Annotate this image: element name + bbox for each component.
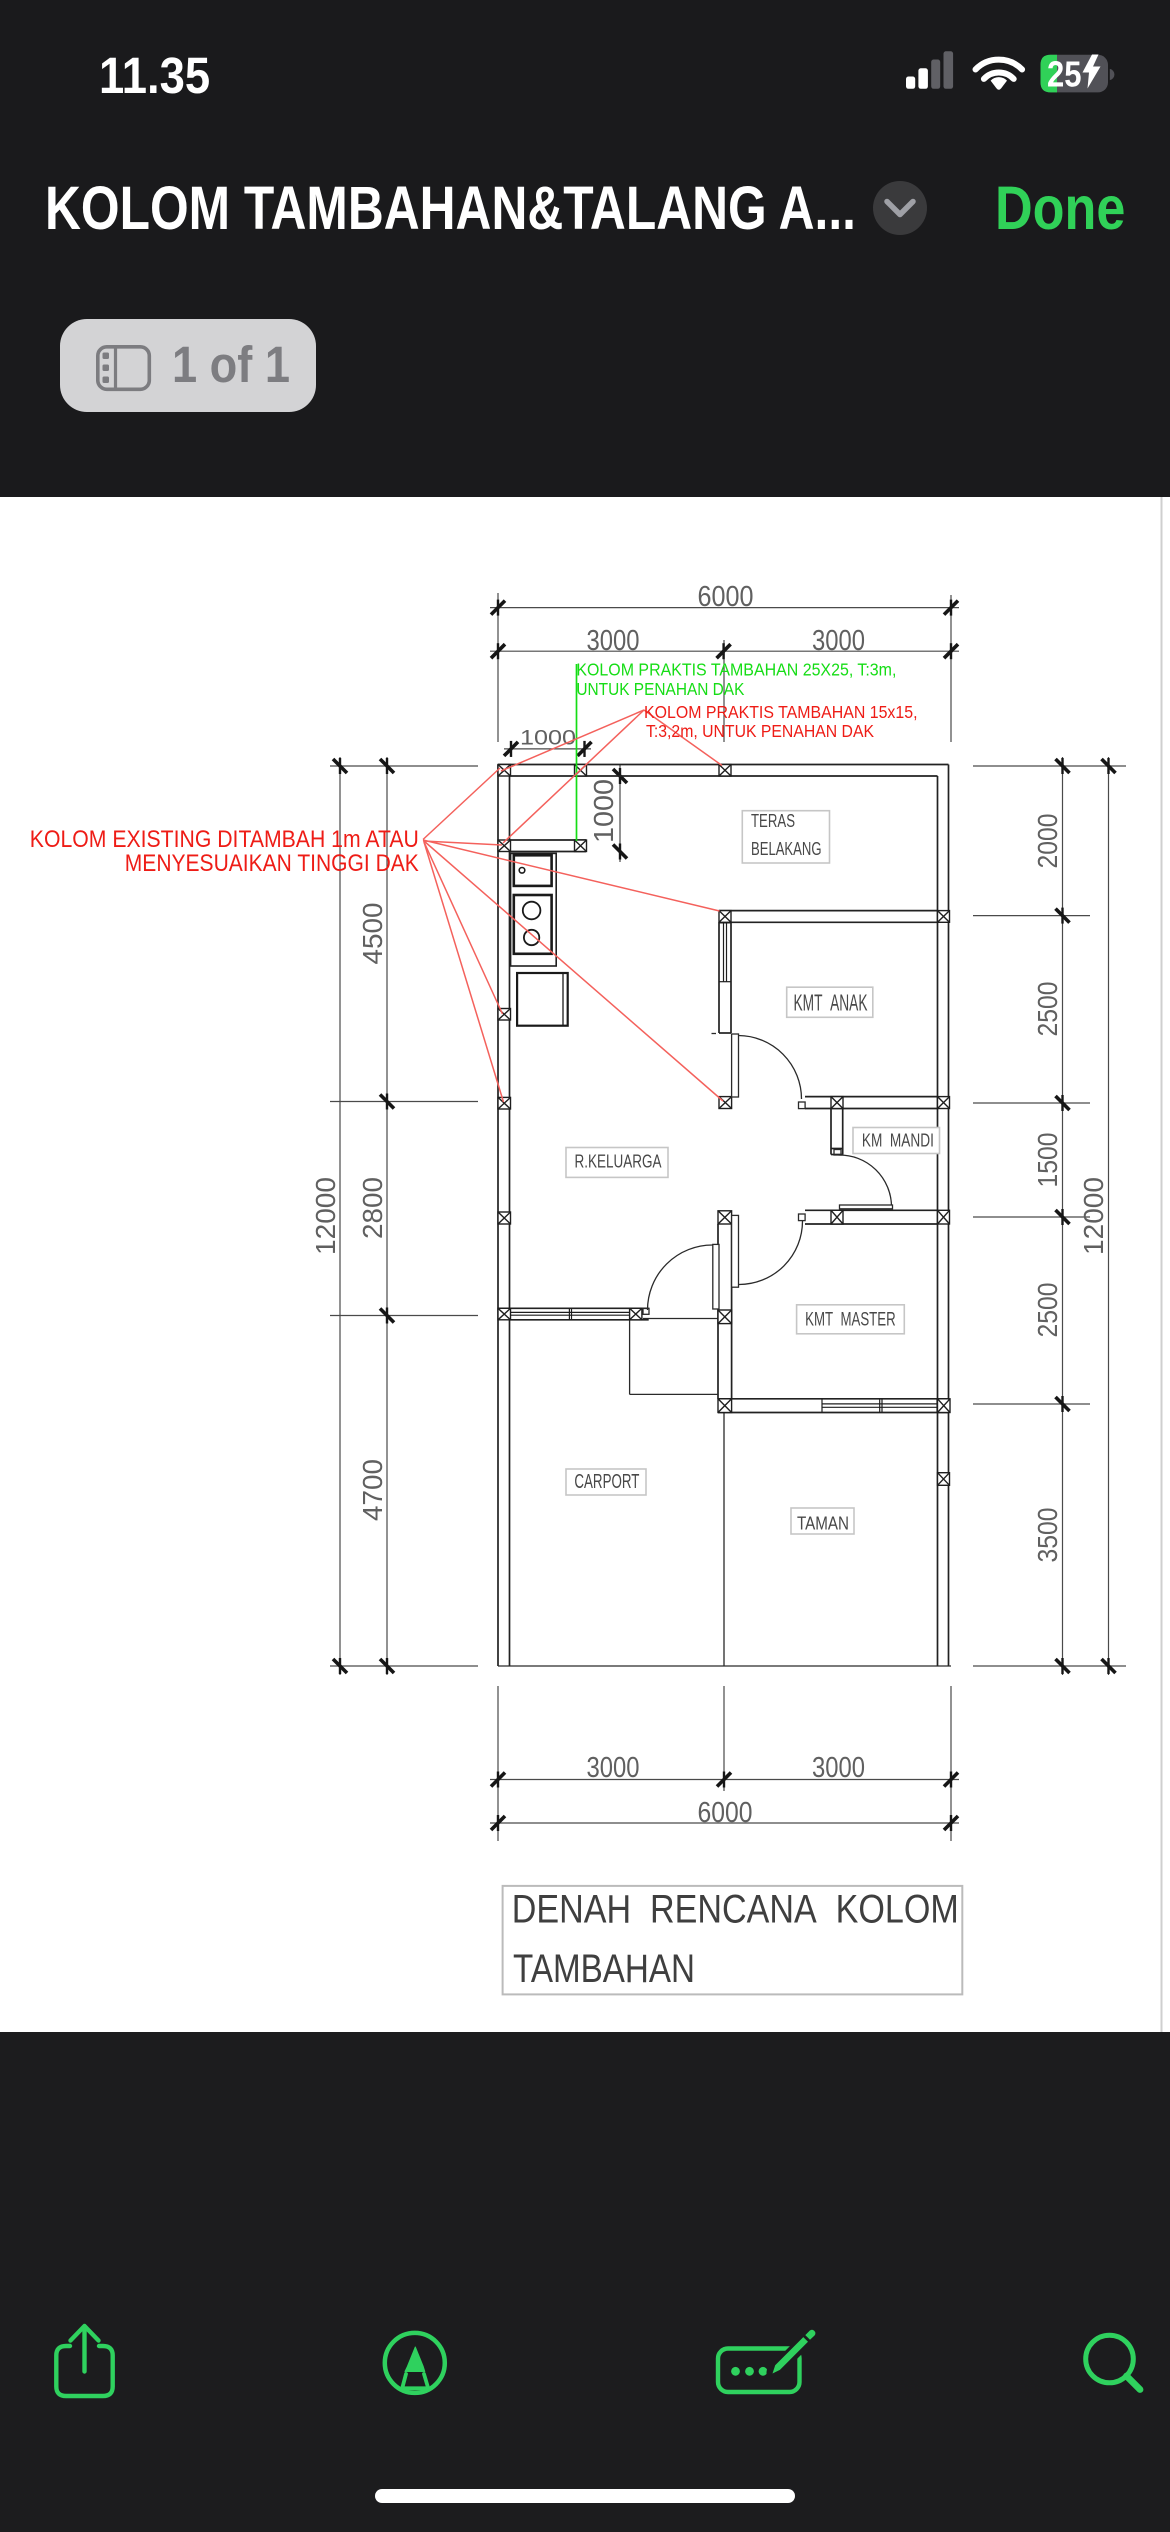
svg-text:3000: 3000	[587, 1752, 640, 1784]
svg-text:DENAH RENCANA KOLOM: DENAH RENCANA KOLOM	[512, 1888, 959, 1932]
svg-text:1000: 1000	[588, 779, 619, 843]
svg-text:3000: 3000	[587, 625, 640, 657]
svg-text:3500: 3500	[1032, 1508, 1063, 1563]
svg-text:6000: 6000	[698, 581, 754, 613]
svg-text:BELAKANG: BELAKANG	[751, 839, 822, 859]
svg-text:TAMAN: TAMAN	[797, 1514, 849, 1534]
svg-text:KMT MASTER: KMT MASTER	[805, 1309, 896, 1330]
svg-text:2000: 2000	[1032, 814, 1063, 869]
svg-text:CARPORT: CARPORT	[574, 1471, 639, 1493]
svg-text:R.KELUARGA: R.KELUARGA	[575, 1151, 662, 1172]
svg-text:12000: 12000	[1078, 1177, 1109, 1255]
svg-text:4500: 4500	[357, 903, 388, 965]
svg-text:3000: 3000	[812, 625, 865, 657]
svg-text:KOLOM PRAKTIS TAMBAHAN 25X25,: KOLOM PRAKTIS TAMBAHAN 25X25, T:3m,	[576, 660, 896, 680]
svg-text:4700: 4700	[357, 1459, 388, 1521]
svg-text:TAMBAHAN: TAMBAHAN	[513, 1947, 695, 1991]
svg-text:T:3,2m, UNTUK PENAHAN DAK: T:3,2m, UNTUK PENAHAN DAK	[646, 721, 874, 741]
svg-text:1000: 1000	[520, 727, 576, 750]
svg-text:KMT ANAK: KMT ANAK	[794, 989, 868, 1015]
svg-text:6000: 6000	[698, 1797, 753, 1829]
svg-text:25: 25	[1047, 54, 1082, 95]
svg-text:KOLOM EXISTING DITAMBAH 1m ATA: KOLOM EXISTING DITAMBAH 1m ATAU	[30, 826, 419, 853]
svg-text:2800: 2800	[357, 1177, 388, 1239]
svg-text:3000: 3000	[812, 1752, 865, 1784]
svg-text:2500: 2500	[1032, 982, 1063, 1037]
svg-text:2500: 2500	[1032, 1283, 1063, 1338]
svg-text:12000: 12000	[310, 1177, 341, 1255]
svg-text:MENYESUAIKAN TINGGI DAK: MENYESUAIKAN TINGGI DAK	[125, 850, 419, 877]
svg-text:UNTUK PENAHAN DAK: UNTUK PENAHAN DAK	[576, 679, 744, 699]
svg-text:1500: 1500	[1032, 1133, 1063, 1188]
svg-text:TERAS: TERAS	[751, 811, 795, 831]
svg-text:KOLOM PRAKTIS TAMBAHAN 15x15,: KOLOM PRAKTIS TAMBAHAN 15x15,	[644, 702, 918, 722]
svg-text:KM MANDI: KM MANDI	[862, 1130, 934, 1151]
